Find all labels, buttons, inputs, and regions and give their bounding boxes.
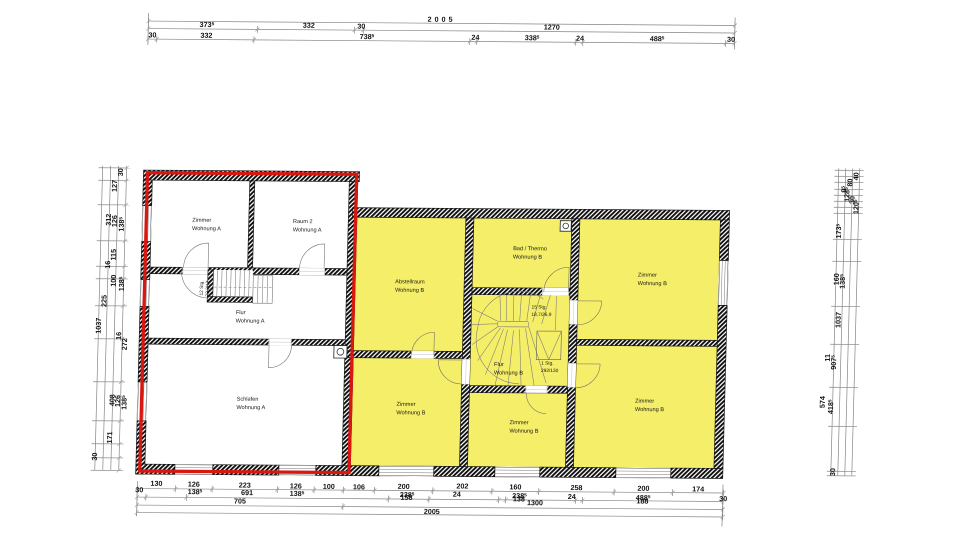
svg-text:127: 127 [110,180,119,192]
svg-text:30: 30 [828,468,837,476]
svg-text:30: 30 [727,35,735,44]
svg-text:1037: 1037 [833,312,842,328]
svg-text:258: 258 [570,483,582,492]
svg-text:171: 171 [105,431,114,443]
svg-text:200: 200 [637,484,649,493]
svg-text:332: 332 [200,31,212,40]
svg-text:30: 30 [116,168,125,176]
svg-text:30: 30 [90,453,99,461]
svg-text:272: 272 [120,338,129,350]
svg-text:2005: 2005 [427,15,455,24]
svg-text:188: 188 [636,496,648,505]
svg-text:225: 225 [99,295,108,307]
svg-text:24: 24 [576,34,584,43]
svg-text:1300: 1300 [527,498,543,507]
svg-text:160: 160 [509,482,521,491]
svg-text:158: 158 [400,493,412,502]
svg-text:24: 24 [568,492,576,501]
svg-text:106: 106 [353,482,365,491]
svg-text:30: 30 [148,30,156,39]
svg-text:130: 130 [150,479,162,488]
svg-text:332: 332 [303,21,315,30]
svg-text:138: 138 [513,494,525,503]
svg-text:1270: 1270 [544,23,560,32]
svg-text:30: 30 [357,22,365,31]
svg-text:100: 100 [323,482,335,491]
svg-text:115: 115 [109,249,118,261]
svg-text:24: 24 [471,33,479,42]
svg-text:30: 30 [135,485,143,494]
svg-text:705: 705 [234,497,246,506]
svg-text:23,3/17: 23,3/17 [205,280,211,296]
svg-text:2005: 2005 [424,507,440,516]
svg-text:80: 80 [845,179,854,187]
svg-text:16: 16 [103,261,112,269]
svg-text:1037: 1037 [94,318,103,334]
svg-text:24: 24 [453,490,461,499]
svg-text:12 Stg.: 12 Stg. [199,280,205,295]
svg-text:174: 174 [692,484,704,493]
